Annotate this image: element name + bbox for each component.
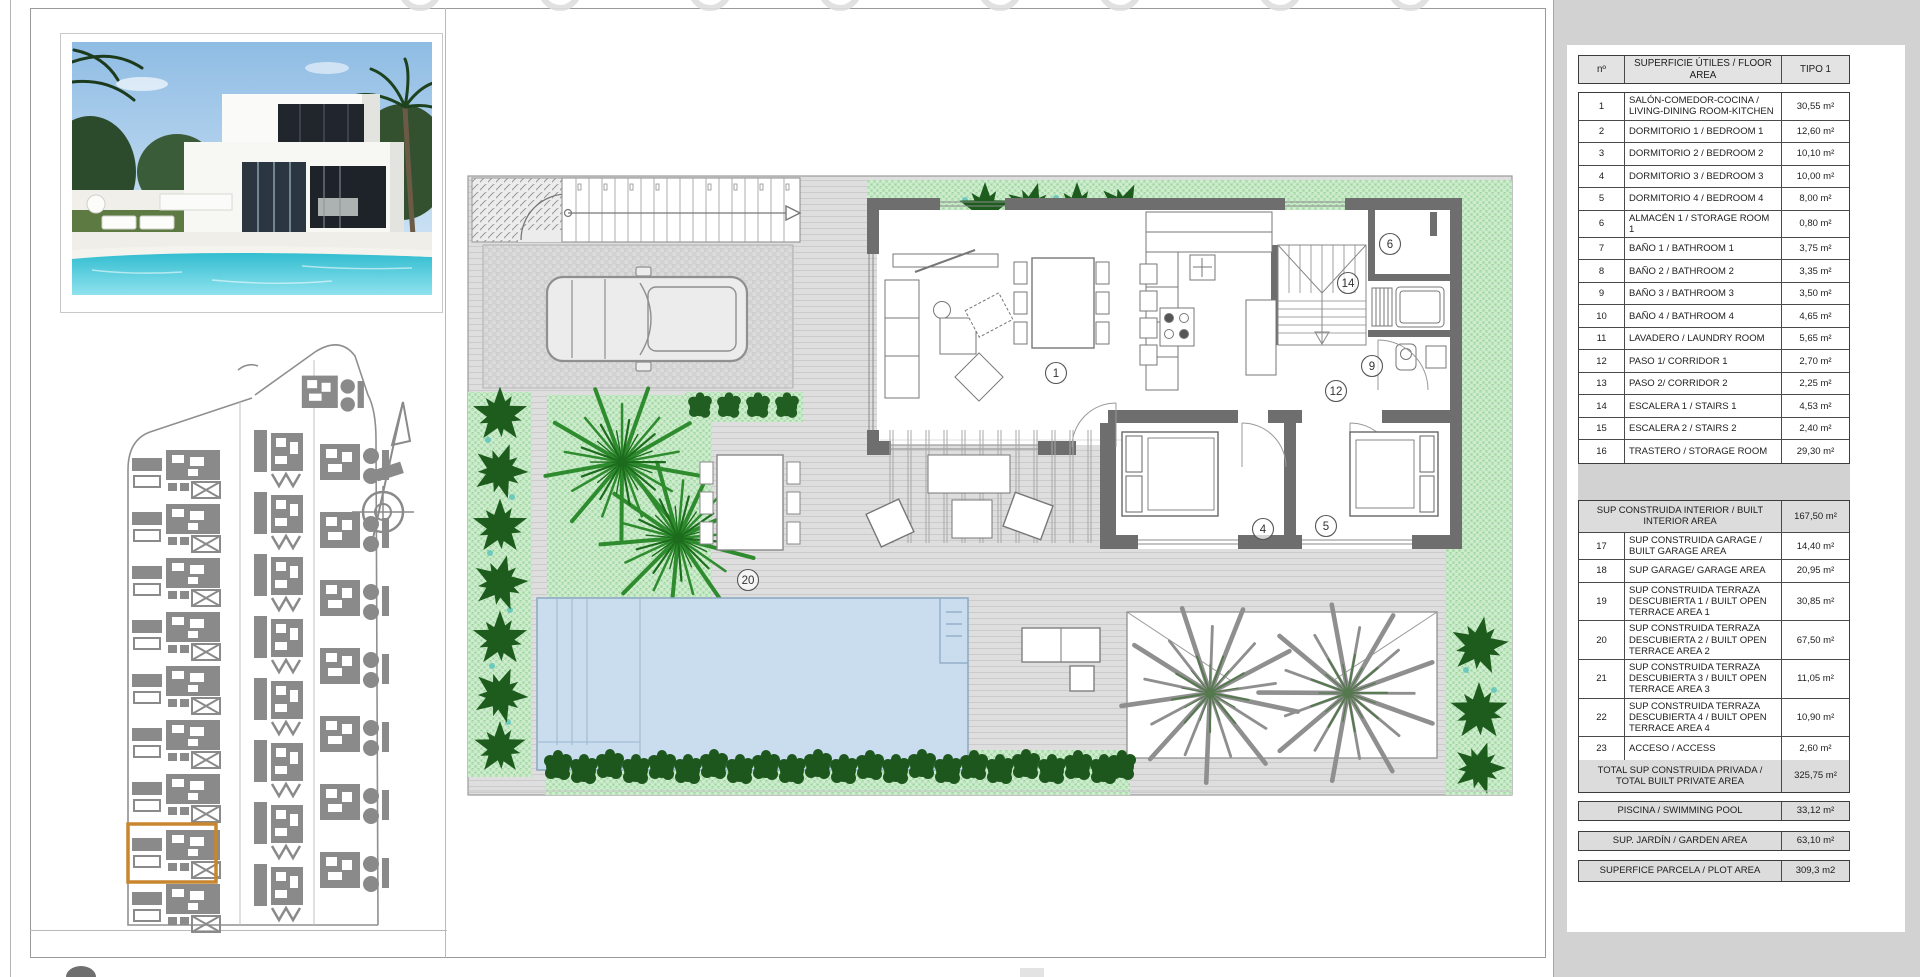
- exterior-stairs: [562, 178, 800, 242]
- row-desc: DORMITORIO 4 / BEDROOM 4: [1625, 188, 1782, 210]
- area-table-card: nº SUPERFICIE ÚTILES / FLOOR AREA TIPO 1…: [1567, 45, 1905, 932]
- room-label: 20: [738, 570, 759, 591]
- row-number: 11: [1579, 328, 1625, 350]
- interior-total-row: SUP CONSTRUIDA INTERIOR / BUILT INTERIOR…: [1579, 501, 1849, 533]
- row-value: 5,65 m²: [1782, 328, 1849, 350]
- row-number: 14: [1579, 395, 1625, 417]
- row-desc: SUP GARAGE/ GARAGE AREA: [1625, 560, 1782, 582]
- table-row: 21 SUP CONSTRUIDA TERRAZA DESCUBIERTA 3 …: [1579, 660, 1849, 699]
- row-number: 4: [1579, 166, 1625, 188]
- row-desc: SALÓN-COMEDOR-COCINA / LIVING-DINING ROO…: [1625, 93, 1782, 119]
- plot-area-label: SUPERFICE PARCELA / PLOT AREA: [1579, 861, 1782, 881]
- table-row: 5 DORMITORIO 4 / BEDROOM 4 8,00 m²: [1579, 188, 1849, 211]
- garden-area-row: SUP. JARDÍN / GARDEN AREA 63,10 m²: [1578, 831, 1850, 851]
- villa-photo: [72, 42, 432, 295]
- row-desc: DORMITORIO 1 / BEDROOM 1: [1625, 121, 1782, 143]
- row-number: 13: [1579, 373, 1625, 395]
- interior-total-label: SUP CONSTRUIDA INTERIOR / BUILT INTERIOR…: [1579, 501, 1782, 532]
- table-row: 8 BAÑO 2 / BATHROOM 2 3,35 m²: [1579, 260, 1849, 283]
- row-value: 30,85 m²: [1782, 583, 1849, 621]
- row-value: 0,80 m²: [1782, 211, 1849, 237]
- row-value: 2,40 m²: [1782, 418, 1849, 440]
- floor-plan: 1 4 5 6 9 12 14 20: [455, 140, 1520, 800]
- built-area-section: SUP CONSTRUIDA INTERIOR / BUILT INTERIOR…: [1578, 500, 1850, 793]
- area-table: nº SUPERFICIE ÚTILES / FLOOR AREA TIPO 1…: [1578, 55, 1850, 882]
- table-row: 2 DORMITORIO 1 / BEDROOM 1 12,60 m²: [1579, 121, 1849, 144]
- row-desc: ESCALERA 2 / STAIRS 2: [1625, 418, 1782, 440]
- row-desc: ALMACÉN 1 / STORAGE ROOM 1: [1625, 211, 1782, 237]
- table-row: 17 SUP CONSTRUIDA GARAGE / BUILT GARAGE …: [1579, 533, 1849, 560]
- table-row: 10 BAÑO 4 / BATHROOM 4 4,65 m²: [1579, 305, 1849, 328]
- row-desc: PASO 2/ CORRIDOR 2: [1625, 373, 1782, 395]
- plan-sheet: 1 4 5 6 9 12 14 20 nº SUPERFICIE ÚTILES …: [0, 0, 1920, 977]
- total-private-value: 325,75 m²: [1782, 760, 1849, 792]
- row-desc: DORMITORIO 3 / BEDROOM 3: [1625, 166, 1782, 188]
- table-header: nº SUPERFICIE ÚTILES / FLOOR AREA TIPO 1: [1578, 55, 1850, 84]
- row-number: 22: [1579, 699, 1625, 737]
- row-number: 19: [1579, 583, 1625, 621]
- page-left-border: [10, 0, 11, 977]
- room-label: 6: [1380, 234, 1401, 255]
- table-row: 3 DORMITORIO 2 / BEDROOM 2 10,10 m²: [1579, 143, 1849, 166]
- row-number: 7: [1579, 238, 1625, 260]
- row-value: 30,55 m²: [1782, 93, 1849, 119]
- table-row: 7 BAÑO 1 / BATHROOM 1 3,75 m²: [1579, 238, 1849, 261]
- row-number: 20: [1579, 621, 1625, 659]
- row-desc: LAVADERO / LAUNDRY ROOM: [1625, 328, 1782, 350]
- total-private-label: TOTAL SUP CONSTRUIDA PRIVADA / TOTAL BUI…: [1579, 760, 1782, 792]
- row-value: 11,05 m²: [1782, 660, 1849, 698]
- table-row: 18 SUP GARAGE/ GARAGE AREA 20,95 m²: [1579, 560, 1849, 583]
- interior-stairs: [1278, 245, 1366, 345]
- row-desc: TRASTERO / STORAGE ROOM: [1625, 440, 1782, 463]
- header-type: TIPO 1: [1782, 56, 1849, 83]
- table-row: 15 ESCALERA 2 / STAIRS 2 2,40 m²: [1579, 418, 1849, 441]
- row-value: 3,35 m²: [1782, 260, 1849, 282]
- pool-area-label: PISCINA / SWIMMING POOL: [1579, 802, 1782, 820]
- row-value: 4,65 m²: [1782, 305, 1849, 327]
- row-desc: SUP CONSTRUIDA TERRAZA DESCUBIERTA 4 / B…: [1625, 699, 1782, 737]
- site-plots: [132, 376, 389, 932]
- row-number: 5: [1579, 188, 1625, 210]
- svg-text:14: 14: [1342, 278, 1355, 290]
- row-number: 21: [1579, 660, 1625, 698]
- entry-porch: [472, 178, 567, 242]
- row-number: 16: [1579, 440, 1625, 463]
- row-value: 2,70 m²: [1782, 350, 1849, 372]
- row-number: 10: [1579, 305, 1625, 327]
- row-value: 10,90 m²: [1782, 699, 1849, 737]
- table-row: 6 ALMACÉN 1 / STORAGE ROOM 1 0,80 m²: [1579, 211, 1849, 238]
- row-value: 20,95 m²: [1782, 560, 1849, 582]
- table-row: 13 PASO 2/ CORRIDOR 2 2,25 m²: [1579, 373, 1849, 396]
- row-number: 12: [1579, 350, 1625, 372]
- car-icon: [547, 267, 747, 371]
- svg-text:6: 6: [1387, 239, 1393, 251]
- row-value: 14,40 m²: [1782, 533, 1849, 559]
- interior-total-value: 167,50 m²: [1782, 501, 1849, 532]
- plot-area-value: 309,3 m2: [1782, 861, 1849, 881]
- floor-area-rows: 1 SALÓN-COMEDOR-COCINA / LIVING-DINING R…: [1578, 92, 1850, 464]
- row-desc: SUP CONSTRUIDA TERRAZA DESCUBIERTA 2 / B…: [1625, 621, 1782, 659]
- table-row: 16 TRASTERO / STORAGE ROOM 29,30 m²: [1579, 440, 1849, 463]
- watermark-strip: [390, 0, 1540, 13]
- header-desc: SUPERFICIE ÚTILES / FLOOR AREA: [1625, 56, 1782, 83]
- row-number: 1: [1579, 93, 1625, 119]
- north-arrow-icon: [352, 402, 414, 552]
- row-value: 10,10 m²: [1782, 143, 1849, 165]
- table-row: 19 SUP CONSTRUIDA TERRAZA DESCUBIERTA 1 …: [1579, 583, 1849, 622]
- row-value: 2,25 m²: [1782, 373, 1849, 395]
- row-desc: ESCALERA 1 / STAIRS 1: [1625, 395, 1782, 417]
- table-row: 1 SALÓN-COMEDOR-COCINA / LIVING-DINING R…: [1579, 93, 1849, 120]
- header-num: nº: [1579, 56, 1625, 83]
- row-desc: DORMITORIO 2 / BEDROOM 2: [1625, 143, 1782, 165]
- row-number: 6: [1579, 211, 1625, 237]
- site-boundary: [128, 345, 378, 925]
- svg-text:9: 9: [1369, 361, 1375, 373]
- garden-area-label: SUP. JARDÍN / GARDEN AREA: [1579, 832, 1782, 850]
- table-row: 22 SUP CONSTRUIDA TERRAZA DESCUBIERTA 4 …: [1579, 699, 1849, 738]
- table-row: 9 BAÑO 3 / BATHROOM 3 3,50 m²: [1579, 283, 1849, 306]
- row-value: 8,00 m²: [1782, 188, 1849, 210]
- panel-divider: [445, 8, 446, 958]
- row-value: 3,50 m²: [1782, 283, 1849, 305]
- row-value: 4,53 m²: [1782, 395, 1849, 417]
- table-row: 23 ACCESO / ACCESS 2,60 m²: [1579, 737, 1849, 760]
- total-private-row: TOTAL SUP CONSTRUIDA PRIVADA / TOTAL BUI…: [1579, 760, 1849, 792]
- room-label: 12: [1326, 381, 1347, 402]
- table-row: 20 SUP CONSTRUIDA TERRAZA DESCUBIERTA 2 …: [1579, 621, 1849, 660]
- table-row: 12 PASO 1/ CORRIDOR 1 2,70 m²: [1579, 350, 1849, 373]
- site-plan: [95, 330, 425, 935]
- swimming-pool: [537, 598, 968, 770]
- row-desc: SUP CONSTRUIDA GARAGE / BUILT GARAGE ARE…: [1625, 533, 1782, 559]
- row-desc: BAÑO 3 / BATHROOM 3: [1625, 283, 1782, 305]
- row-number: 17: [1579, 533, 1625, 559]
- row-desc: BAÑO 2 / BATHROOM 2: [1625, 260, 1782, 282]
- row-desc: SUP CONSTRUIDA TERRAZA DESCUBIERTA 1 / B…: [1625, 583, 1782, 621]
- garage: [483, 245, 793, 388]
- row-number: 3: [1579, 143, 1625, 165]
- row-number: 2: [1579, 121, 1625, 143]
- room-label: 5: [1316, 516, 1337, 537]
- row-value: 10,00 m²: [1782, 166, 1849, 188]
- villa-photo-frame: [60, 33, 443, 313]
- table-row: 11 LAVADERO / LAUNDRY ROOM 5,65 m²: [1579, 328, 1849, 351]
- row-desc: SUP CONSTRUIDA TERRAZA DESCUBIERTA 3 / B…: [1625, 660, 1782, 698]
- garden-area-value: 63,10 m²: [1782, 832, 1849, 850]
- row-number: 18: [1579, 560, 1625, 582]
- row-number: 9: [1579, 283, 1625, 305]
- svg-text:20: 20: [742, 575, 755, 587]
- svg-text:5: 5: [1323, 521, 1329, 533]
- row-desc: BAÑO 1 / BATHROOM 1: [1625, 238, 1782, 260]
- row-number: 8: [1579, 260, 1625, 282]
- pool-area-row: PISCINA / SWIMMING POOL 33,12 m²: [1578, 801, 1850, 821]
- footer-mark: [1020, 968, 1044, 977]
- row-value: 67,50 m²: [1782, 621, 1849, 659]
- row-desc: BAÑO 4 / BATHROOM 4: [1625, 305, 1782, 327]
- row-desc: ACCESO / ACCESS: [1625, 737, 1782, 760]
- row-number: 15: [1579, 418, 1625, 440]
- table-row: 4 DORMITORIO 3 / BEDROOM 3 10,00 m²: [1579, 166, 1849, 189]
- room-label: 9: [1362, 356, 1383, 377]
- row-value: 3,75 m²: [1782, 238, 1849, 260]
- row-value: 12,60 m²: [1782, 121, 1849, 143]
- row-number: 23: [1579, 737, 1625, 760]
- plot-area-row: SUPERFICE PARCELA / PLOT AREA 309,3 m2: [1578, 860, 1850, 882]
- svg-text:4: 4: [1260, 524, 1267, 536]
- row-value: 2,60 m²: [1782, 737, 1849, 760]
- pool-area-value: 33,12 m²: [1782, 802, 1849, 820]
- table-row: 14 ESCALERA 1 / STAIRS 1 4,53 m²: [1579, 395, 1849, 418]
- svg-text:1: 1: [1053, 368, 1059, 380]
- table-spacer: [1578, 464, 1850, 500]
- svg-text:12: 12: [1330, 386, 1343, 398]
- logo-mark: [66, 966, 96, 977]
- row-desc: PASO 1/ CORRIDOR 1: [1625, 350, 1782, 372]
- room-label: 14: [1338, 273, 1359, 294]
- row-value: 29,30 m²: [1782, 440, 1849, 463]
- room-label: 4: [1253, 519, 1274, 540]
- room-label: 1: [1046, 363, 1067, 384]
